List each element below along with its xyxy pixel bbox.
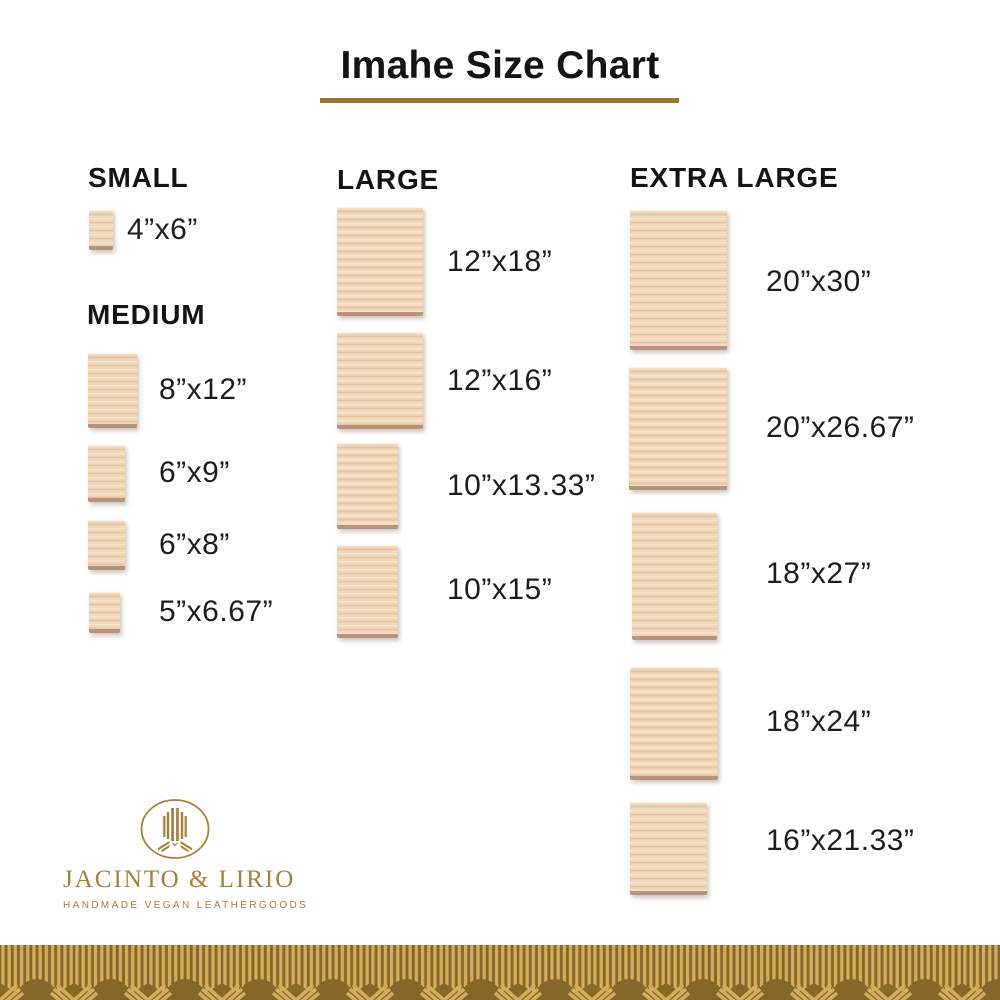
size-label: 18”x24”: [766, 705, 871, 739]
brand-tagline: HANDMADE VEGAN LEATHERGOODS: [63, 900, 287, 911]
wood-swatch: [89, 592, 120, 633]
wood-swatch: [337, 332, 423, 429]
wood-swatch: [337, 545, 398, 638]
group-header-small: SMALL: [88, 162, 188, 194]
wood-swatch: [632, 512, 717, 640]
size-label: 5”x6.67”: [159, 595, 273, 629]
wood-swatch: [88, 445, 125, 502]
size-label: 10”x13.33”: [447, 469, 595, 503]
wood-swatch: [88, 353, 137, 428]
wood-swatch: [88, 520, 125, 570]
size-label: 20”x26.67”: [766, 411, 914, 445]
size-label: 6”x8”: [159, 528, 230, 562]
size-chart-graphic: Imahe Size Chart SMALL 4”x6” MEDIUM 8”x1…: [0, 0, 1000, 1000]
brand-logo: JACINTO & LIRIO HANDMADE VEGAN LEATHERGO…: [63, 798, 287, 911]
size-label: 6”x9”: [159, 456, 230, 490]
size-label: 10”x15”: [447, 573, 552, 607]
wood-swatch: [337, 443, 398, 529]
size-label: 8”x12”: [159, 373, 247, 407]
wood-swatch: [89, 210, 113, 250]
group-header-medium: MEDIUM: [87, 299, 205, 331]
group-header-large: LARGE: [337, 164, 439, 196]
title-underline: [320, 98, 679, 103]
wood-swatch: [629, 367, 727, 490]
page-title: Imahe Size Chart: [0, 44, 1000, 88]
size-label: 20”x30”: [766, 265, 871, 299]
size-label: 16”x21.33”: [766, 824, 914, 858]
size-label: 12”x18”: [447, 245, 552, 279]
size-label: 18”x27”: [766, 557, 871, 591]
wood-swatch: [337, 207, 423, 316]
wood-swatch: [630, 210, 727, 350]
size-label: 12”x16”: [447, 364, 552, 398]
brand-name: JACINTO & LIRIO: [63, 866, 287, 894]
size-label: 4”x6”: [127, 213, 198, 247]
group-header-extra-large: EXTRA LARGE: [630, 162, 838, 194]
wood-swatch: [630, 802, 707, 895]
wood-swatch: [630, 667, 718, 780]
decorative-woven-border: [0, 945, 1000, 1000]
brand-monogram-icon: [140, 798, 210, 862]
